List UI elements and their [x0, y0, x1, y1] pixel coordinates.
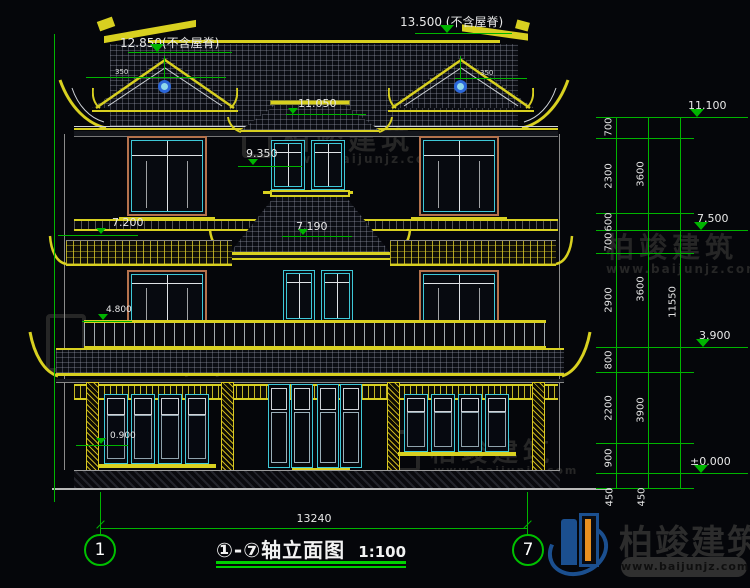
dim-600: 600: [604, 212, 615, 231]
level-mark-icon: [150, 44, 164, 52]
dim-2200: 2200: [604, 395, 615, 420]
baijun-logo-icon: [545, 509, 615, 583]
level-mark-icon: [694, 222, 708, 230]
level-mark-icon: [440, 25, 454, 33]
level-mark-icon: [694, 465, 708, 473]
level-line-12850: [128, 52, 232, 53]
level-mark-icon: [248, 159, 258, 165]
dim-chain-mid: [648, 117, 649, 488]
pavilion-ridge: [270, 190, 350, 197]
pavilion-eave-fascia: [220, 255, 400, 260]
door-panel: [340, 384, 362, 468]
level-label-12850: 12.850(不含屋脊): [120, 34, 219, 51]
level-label-7200: 7.200: [112, 216, 144, 229]
dim-900: 900: [604, 448, 615, 467]
axis-bubble-7: 7: [512, 534, 544, 566]
dim-3900: 3900: [636, 397, 647, 422]
window-3f-right: [419, 136, 499, 216]
window-1f-right: [431, 394, 455, 452]
overall-width-dim: 13240: [288, 512, 340, 525]
watermark-url: www.baijunjz.com: [606, 262, 750, 276]
dim-450: 450: [605, 487, 616, 506]
dim-800: 800: [604, 350, 615, 369]
axis-bubble-1: 1: [84, 534, 116, 566]
window-1f-left: [104, 394, 128, 464]
column: [387, 382, 400, 474]
level-line-13500: [415, 33, 512, 34]
roof-ridge-hook-right: [515, 19, 530, 31]
logo-tower-left: [561, 519, 577, 565]
window-2f-center-left: [283, 270, 315, 322]
gable-dim-ext-left: [164, 56, 165, 77]
gable-dim-ext-right: [460, 56, 461, 78]
level-line-zero: [662, 473, 748, 474]
window-1f-right: [458, 394, 482, 452]
dim-2300: 2300: [604, 163, 615, 188]
plinth: [74, 470, 560, 488]
door-panel: [317, 384, 339, 468]
dim-2900: 2900: [604, 287, 615, 312]
level-label-4800: 4.800: [106, 305, 132, 315]
window-3f-center-right: [311, 140, 345, 190]
window-1f-right: [404, 394, 428, 452]
gable-left: [92, 54, 238, 114]
drawing-title: ①-⑦轴立面图: [216, 538, 345, 562]
window-1f-right: [485, 394, 509, 452]
balcony-railing: [84, 320, 546, 348]
dim-700: 700: [604, 117, 615, 136]
cad-elevation-drawing: 柏竣建筑 www.baijunjz.com 柏竣建筑 www.baijunjz.…: [0, 0, 750, 588]
roof-ridge-hook-left: [97, 17, 115, 32]
title-underline-2: [216, 566, 406, 568]
baijun-logo: 柏竣建筑 www.baijunjz.com: [545, 505, 750, 588]
level-mark-icon: [96, 228, 106, 234]
level-mark-icon: [696, 339, 710, 347]
level-line-11050: [286, 114, 366, 115]
level-mark-icon: [96, 438, 106, 444]
column: [86, 382, 99, 474]
wall-edge-right: [559, 134, 560, 470]
dim-3600: 3600: [636, 276, 647, 301]
level-label-0900: 0.900: [110, 431, 136, 441]
ground-line: [52, 488, 612, 490]
bracket-horn-left: [48, 234, 68, 266]
level-mark-icon: [690, 109, 704, 117]
gable-dim-left: 350: [115, 68, 128, 76]
column: [532, 382, 545, 474]
logo-accent: [585, 519, 591, 561]
level-line-7500: [664, 230, 748, 231]
axis-line-left: [54, 34, 55, 502]
watermark-brand: 柏竣建筑: [606, 226, 738, 266]
dormer-horn-left: [226, 116, 242, 134]
gable-dim-line-left: [86, 77, 226, 78]
first-roof-horn-left: [28, 330, 60, 378]
drawing-scale: 1:100: [358, 543, 406, 561]
level-label-11050: 11.050: [298, 97, 337, 110]
bracket-horn-right: [554, 234, 574, 266]
level-mark-icon: [288, 108, 298, 114]
overall-dim-line: [100, 528, 528, 529]
ext-line-axis7: [527, 492, 528, 536]
bracket-band-left: [66, 240, 232, 266]
level-line-7200: [58, 235, 138, 236]
gable-dim-right: 350: [480, 69, 493, 77]
bracket-band-right: [390, 240, 556, 266]
window-1f-left: [131, 394, 155, 464]
level-line-4800: [82, 321, 132, 322]
door-panel: [291, 384, 313, 468]
wall-edge-left: [64, 134, 65, 470]
dormer-horn-right: [378, 116, 394, 134]
first-floor-roof: [56, 348, 564, 376]
gable-right: [388, 54, 534, 114]
window-2f-center-right: [321, 270, 353, 322]
level-line-7190: [282, 236, 352, 237]
level-mark-icon: [298, 229, 308, 235]
column: [221, 382, 234, 474]
sill-1f-right: [398, 452, 516, 456]
sill-1f-left: [98, 464, 216, 468]
door-panel: [268, 384, 290, 468]
watermark-url: www.baijunjz.com: [286, 152, 441, 166]
gable-medallion-icon: [158, 80, 171, 93]
window-1f-left: [158, 394, 182, 464]
level-mark-icon: [98, 314, 108, 320]
dim-11550: 11550: [668, 286, 679, 318]
window-3f-left: [127, 136, 207, 216]
window-2f-left: [127, 270, 207, 326]
level-line-3900: [666, 347, 748, 348]
level-line-9350: [238, 166, 302, 167]
dim-chain-inner: [616, 117, 617, 488]
first-roof-horn-right: [560, 330, 592, 378]
first-floor-eave-fascia: [56, 379, 564, 383]
window-2f-right: [419, 270, 499, 326]
logo-url-pill: www.baijunjz.com: [621, 557, 747, 577]
window-1f-left: [185, 394, 209, 464]
dim-3600: 3600: [636, 161, 647, 186]
gable-medallion-icon: [454, 80, 467, 93]
dim-450: 450: [637, 487, 648, 506]
level-line-0900: [76, 445, 128, 446]
logo-swoosh: [540, 515, 617, 586]
gable-dim-line-right: [455, 78, 527, 79]
dim-700: 700: [604, 232, 615, 251]
dim-chain-outer: [680, 117, 681, 488]
drawing-title-block: ①-⑦轴立面图 1:100: [216, 534, 416, 560]
level-line-11100: [656, 117, 748, 118]
ext-line-axis1: [100, 492, 101, 536]
title-underline: [216, 561, 406, 564]
